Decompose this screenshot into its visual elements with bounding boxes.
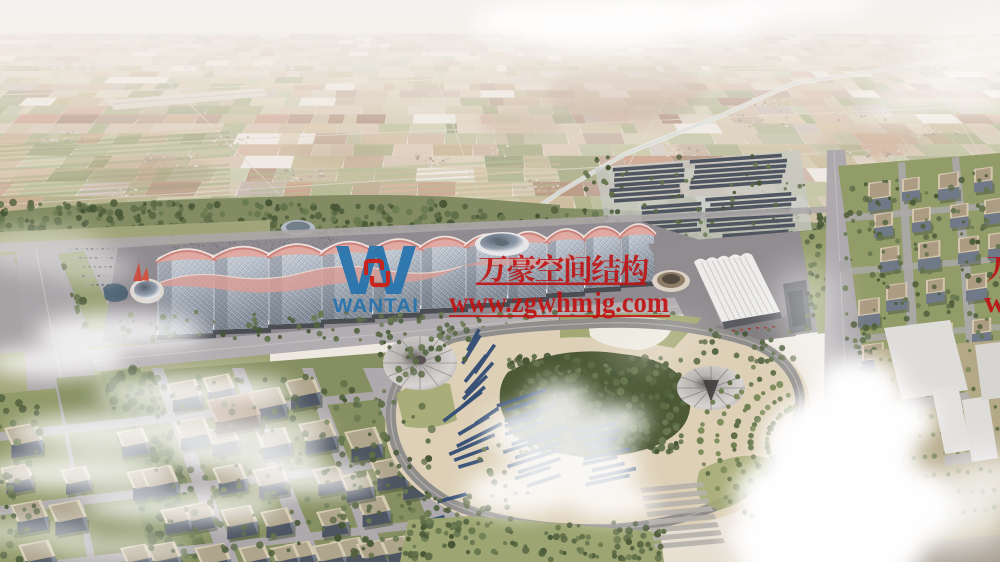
svg-text:www.zgwhmjg.com: www.zgwhmjg.com (449, 286, 669, 319)
svg-text:w: w (984, 284, 1000, 319)
svg-text:WANTAI: WANTAI (333, 296, 419, 317)
